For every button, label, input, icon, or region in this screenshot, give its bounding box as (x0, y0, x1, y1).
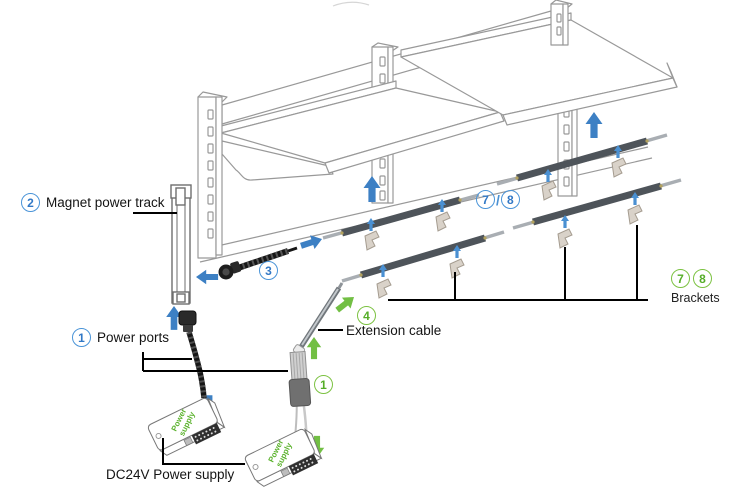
label-tracks-pair: 7 / 8 (476, 190, 520, 209)
label-text: Brackets (671, 291, 720, 305)
power-port-connector (287, 351, 313, 442)
pointer-line-brackets (388, 225, 648, 300)
label-text: Extension cable (346, 323, 441, 338)
circled-number-7: 7 (476, 190, 495, 209)
slash-separator: / (496, 192, 500, 208)
pointer-line-power-ports (143, 352, 288, 371)
label-text: Power ports (97, 330, 169, 345)
scan-artifact (333, 2, 369, 6)
circled-number-3: 3 (259, 261, 278, 280)
label-text: Magnet power track (46, 195, 165, 210)
bracket-clip (365, 231, 379, 250)
label-dc24v-power-supply: DC24V Power supply (106, 467, 234, 482)
circled-number-1: 1 (72, 328, 91, 347)
circled-number-7-green: 7 (671, 269, 690, 288)
label-track-connector: 3 (259, 261, 278, 280)
bracket-clip (377, 279, 391, 298)
bracket-clip (542, 181, 556, 200)
diagram-canvas (0, 0, 746, 496)
magnet-power-track (171, 185, 191, 304)
circled-number-8: 8 (501, 190, 520, 209)
label-power-ports: 1 Power ports (72, 328, 169, 347)
up-arrow-icon (586, 112, 603, 138)
label-brackets: 7 8 Brackets (671, 269, 720, 305)
label-text: DC24V Power supply (106, 467, 234, 482)
circled-number-2: 2 (21, 193, 40, 212)
bracket-clip (558, 229, 572, 248)
right-up-arrow-icon (299, 232, 324, 253)
label-power-port-connector: 1 (314, 375, 333, 394)
circled-number-8-green: 8 (693, 269, 712, 288)
track-bracket-clips (365, 158, 642, 298)
circled-number-1-green: 1 (314, 375, 333, 394)
installation-diagram: 2 Magnet power track 1 Power ports 3 7 /… (0, 0, 746, 496)
track-bar (513, 180, 681, 228)
bracket-clip (612, 158, 626, 177)
bracket-clip (436, 212, 450, 231)
left-arrow-icon (196, 270, 218, 284)
bracket-clip (628, 205, 642, 224)
track-connector-cable (219, 248, 298, 280)
track-bar (497, 135, 667, 184)
bracket-clip (450, 259, 464, 278)
label-extension-cable-text: Extension cable (346, 323, 441, 338)
label-magnet-power-track: 2 Magnet power track (21, 193, 165, 212)
right-post (558, 102, 577, 196)
up-arrow-icon (307, 337, 321, 359)
